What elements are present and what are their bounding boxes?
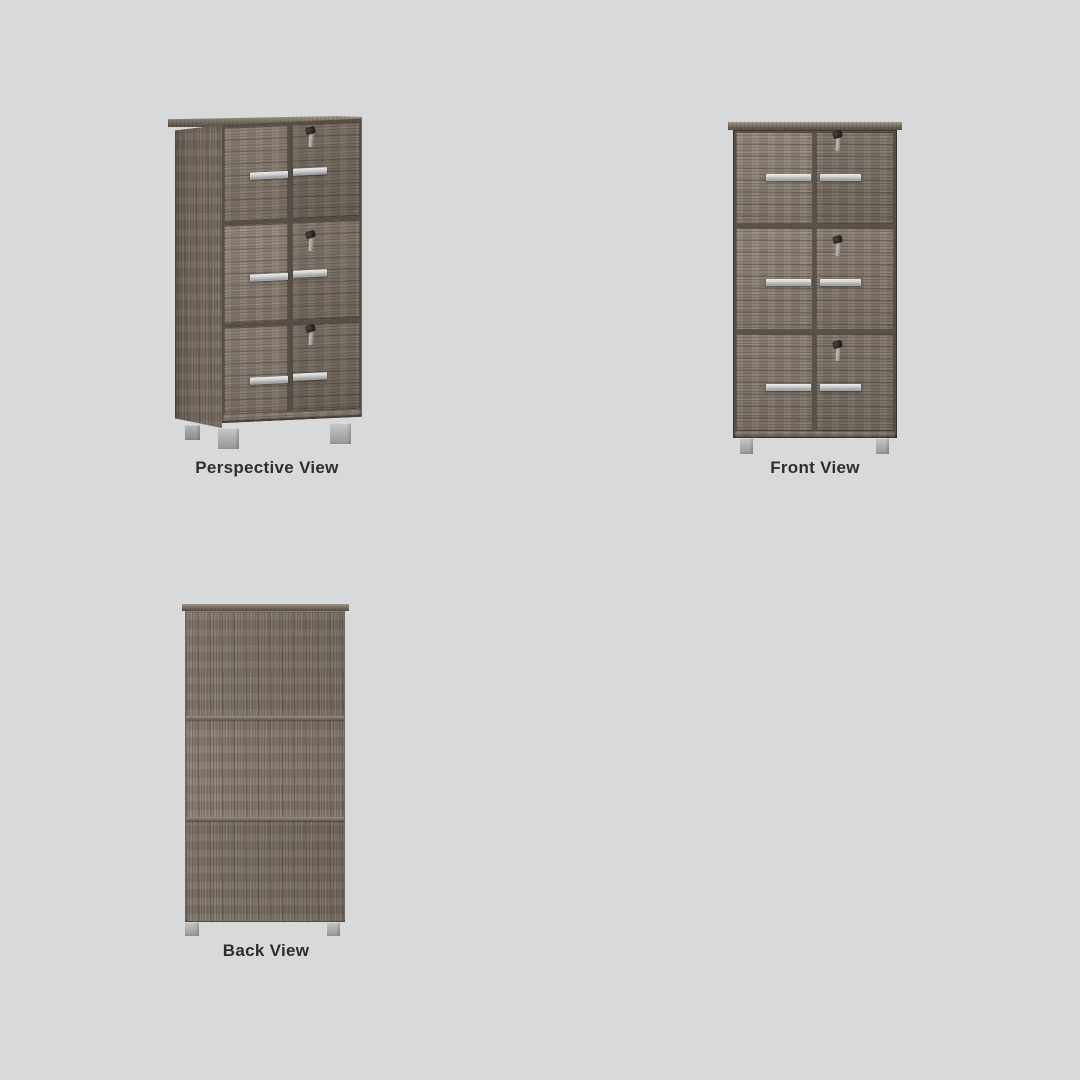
- cabinet-foot-front-left: [218, 428, 239, 449]
- cabinet-top-board: [182, 604, 349, 611]
- back-panel-section-bottom: [186, 821, 344, 921]
- cabinet-front-face: [222, 119, 362, 423]
- back-panel-section-top: [186, 612, 344, 716]
- cabinet-back-panel: [185, 611, 345, 922]
- cabinet-back-view: [178, 598, 354, 975]
- door-handle: [820, 174, 861, 181]
- cabinet-foot-right: [327, 922, 340, 936]
- key-bow: [832, 130, 842, 139]
- cabinet-perspective: [168, 112, 366, 492]
- cabinet-side-panel: [175, 125, 222, 428]
- door-bottom-left: [736, 334, 813, 431]
- door-handle: [766, 384, 811, 391]
- door-bottom-left: [224, 325, 288, 415]
- back-view-figure: Back View: [178, 598, 354, 975]
- perspective-view-figure: Perspective View: [168, 112, 366, 492]
- cabinet-foot-back-left: [185, 425, 200, 440]
- cabinet-base-plinth: [735, 431, 895, 438]
- key-bow: [832, 235, 842, 244]
- front-view-figure: Front View: [725, 115, 905, 492]
- cabinet-top-board: [728, 122, 902, 130]
- lock-key-icon: [832, 131, 844, 155]
- product-views-sheet: Perspective View: [0, 0, 1080, 1080]
- cabinet-front-face: [733, 130, 897, 438]
- lock-key-icon: [305, 127, 317, 152]
- key-bow: [305, 126, 315, 135]
- view-label-perspective: Perspective View: [195, 458, 338, 478]
- door-handle: [820, 279, 861, 286]
- key-bow: [305, 230, 315, 239]
- cabinet-front-view: [725, 115, 905, 492]
- key-shaft: [836, 242, 841, 256]
- door-handle: [766, 174, 811, 181]
- key-shaft: [836, 347, 841, 361]
- back-panel-section-middle: [186, 720, 344, 817]
- cabinet-foot-left: [185, 922, 199, 936]
- key-bow: [305, 324, 315, 333]
- lock-key-icon: [832, 341, 844, 365]
- key-shaft: [309, 331, 314, 345]
- door-bottom-right: [292, 322, 360, 412]
- lock-key-icon: [305, 231, 317, 256]
- cabinet-foot-left: [740, 438, 753, 454]
- lock-key-icon: [305, 325, 317, 350]
- key-bow: [832, 340, 842, 349]
- view-label-front: Front View: [770, 458, 860, 478]
- door-bottom-right: [816, 334, 894, 431]
- cabinet-foot-front-right: [330, 423, 351, 444]
- cabinet-foot-right: [876, 438, 889, 454]
- door-handle: [820, 384, 861, 391]
- key-shaft: [309, 237, 314, 251]
- back-panel-rail: [186, 716, 344, 720]
- side-panel-shading: [175, 125, 222, 428]
- lock-key-icon: [832, 236, 844, 260]
- back-panel-rail: [186, 817, 344, 821]
- key-shaft: [836, 137, 841, 151]
- door-handle: [766, 279, 811, 286]
- view-label-back: Back View: [223, 941, 310, 961]
- key-shaft: [309, 133, 314, 147]
